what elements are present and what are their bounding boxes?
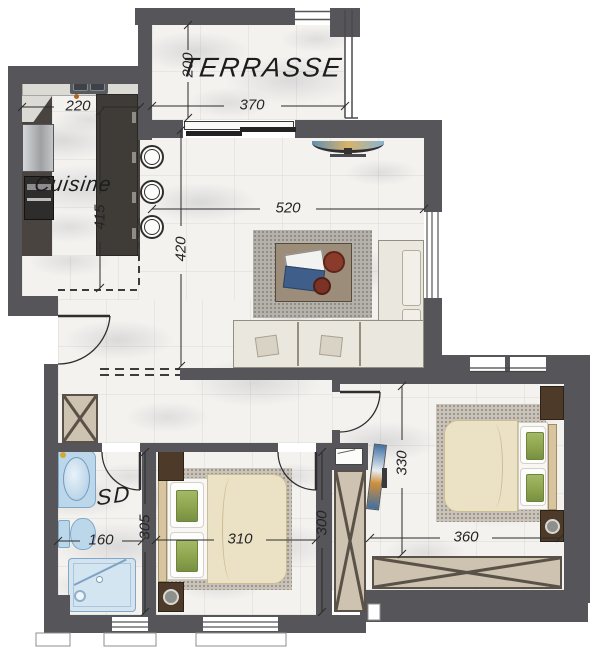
floor-plan: TERRASSE Cuisine SD 370 200 220 415 520 … (0, 0, 600, 653)
entry-door (58, 316, 110, 364)
bathroom-label: SD (97, 481, 132, 512)
dim-kitchen-width: 220 (65, 98, 90, 115)
terrace-label: TERRASSE (179, 53, 345, 84)
kitchen-label: Cuisine (33, 173, 113, 197)
bedroom2-windows (470, 357, 546, 372)
dim-living-depth: 420 (173, 236, 190, 261)
living-window (424, 212, 442, 298)
dimension-lines (18, 21, 564, 616)
dim-bedroom2-width: 360 (453, 529, 478, 546)
dim-living-width: 520 (275, 200, 300, 217)
dim-bathroom-depth: 305 (137, 514, 154, 539)
terrace-railing (345, 10, 358, 118)
dim-kitchen-length: 415 (92, 204, 109, 229)
bathroom-window (112, 617, 148, 631)
bedroom1-window (203, 617, 278, 631)
dim-bathroom-width: 160 (88, 532, 113, 549)
dim-terrace-depth: 200 (180, 52, 197, 77)
bedroom1-door (278, 452, 316, 490)
terrace-top-window (295, 8, 330, 25)
bar-stools (141, 146, 163, 238)
dim-terrace-width: 370 (239, 97, 264, 114)
dim-bedroom1-depth: 300 (314, 510, 331, 535)
dim-bedroom2-depth: 330 (394, 450, 411, 475)
hall-dashed-boundary (100, 369, 180, 375)
dim-bedroom1-width: 310 (227, 531, 252, 548)
bedroom2-door (340, 392, 380, 432)
